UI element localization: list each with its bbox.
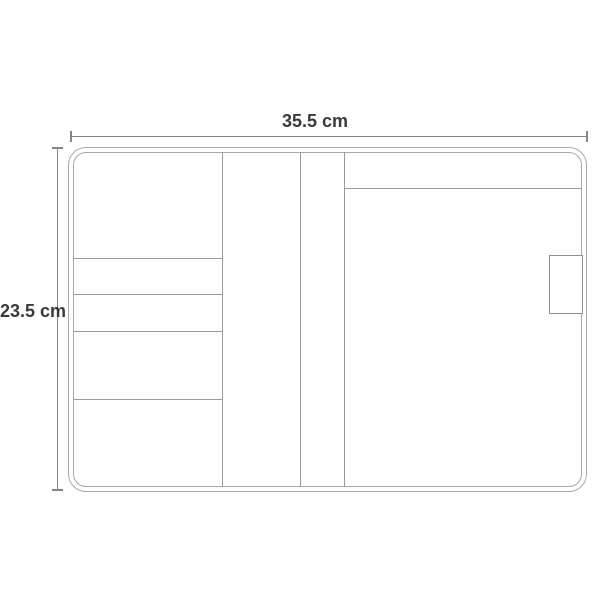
portfolio-dimension-diagram: 35.5 cm 23.5 cm [0,0,600,600]
pocket-slot-line-4 [74,399,222,400]
left-panel-divider-line [222,152,223,487]
height-dimension-bottom-tick [52,489,63,491]
height-dimension-top-tick [52,147,63,149]
portfolio-inner-outline [73,152,582,487]
pocket-slot-line-2 [74,294,222,295]
spine-strip-right-line [344,152,345,487]
width-dimension-line [71,136,587,137]
pen-loop-rect [549,255,583,314]
pocket-slot-line-3 [74,331,222,332]
width-dimension-label: 35.5 cm [240,111,390,131]
width-dimension-right-tick [586,131,588,142]
pocket-slot-line-1 [74,258,222,259]
spine-strip-left-line [300,152,301,487]
height-dimension-label: 23.5 cm [0,301,55,321]
notepad-top-line [344,188,582,189]
width-dimension-left-tick [70,131,72,142]
